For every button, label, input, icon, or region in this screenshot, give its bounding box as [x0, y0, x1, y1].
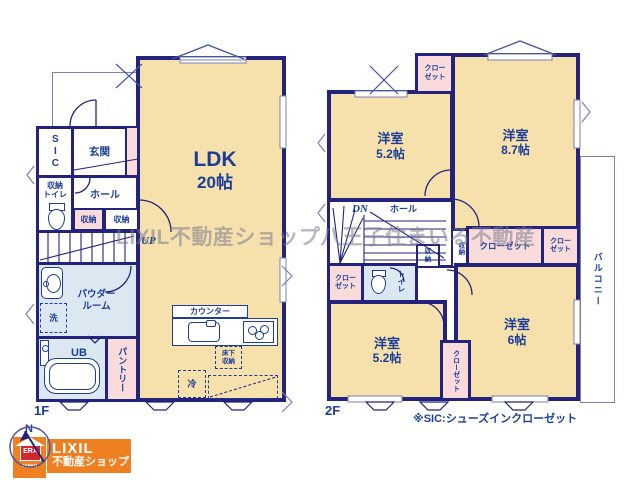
closet-2f-small-l2: ゼット: [550, 246, 571, 254]
compass-north-label: N: [25, 423, 33, 436]
room-2f-se: 洋室 6帖: [454, 263, 580, 401]
pantry-label: パントリー: [117, 347, 128, 392]
brand-sub: 不動産ショップ: [52, 457, 131, 469]
toilet-1f-label1: 収納: [47, 181, 63, 190]
room-toilet-2f: [361, 263, 418, 303]
era-text: ERA: [21, 448, 40, 456]
porch: [52, 72, 140, 128]
room-2f-ne-name: 洋室: [502, 128, 528, 143]
hall-2f-label: ホール: [390, 204, 417, 215]
brand-name: LIXIL: [52, 441, 131, 457]
balcony-label: バルコニー: [592, 252, 603, 307]
sic-label: SIC: [49, 134, 61, 170]
room-genkan: 玄関: [71, 126, 128, 178]
storage-pink-1f: 収納: [73, 208, 104, 231]
closet-2f-left-l2: ゼット: [335, 283, 356, 291]
room-sic: SIC: [36, 126, 74, 178]
closet-2f-top-l1: クロー: [425, 65, 446, 73]
room-2f-nw: 洋室 5.2帖: [327, 90, 454, 202]
closet-2f-mid: クローゼット: [440, 340, 471, 401]
powder-label2: ルーム: [82, 301, 110, 312]
closet-2f-left: クロー ゼット: [327, 263, 364, 303]
era-logo-square: ERA JAPAN: [13, 437, 46, 478]
room-pantry: パントリー: [105, 336, 139, 402]
vent-marks: [60, 402, 533, 410]
ldk-size: 20帖: [160, 173, 270, 193]
closet-2f-top: クロー ゼット: [415, 53, 455, 94]
dn-label: DN: [352, 203, 368, 215]
room-2f-ne: 洋室 8.7帖: [451, 53, 580, 232]
powder-label1: パウダー: [77, 289, 115, 300]
room-2f-sw-name: 洋室: [374, 336, 400, 351]
room-2f-se-size: 6帖: [508, 333, 527, 347]
bathtub-icon: [44, 358, 100, 394]
underfloor-label1: 床下: [222, 350, 235, 358]
genkan-closet: [125, 126, 139, 178]
room-2f-ne-size: 8.7帖: [501, 143, 530, 157]
closet-2f-left-l1: クロー: [335, 275, 356, 283]
brand-logo-box: LIXIL 不動産ショップ: [47, 439, 131, 473]
kitchen-sink-icon: [188, 322, 220, 342]
closet-2f-small: クロー ゼット: [541, 226, 580, 266]
powder-sink-icon: [41, 267, 63, 299]
room-2f-nw-name: 洋室: [377, 131, 403, 146]
closet-2f-small-l1: クロー: [550, 238, 571, 246]
washer-box: 洗: [40, 303, 67, 333]
closet-2f-top-l2: ゼット: [425, 74, 446, 82]
toilet-2f-label: トイレ: [396, 270, 405, 293]
underfloor-storage-box: 床下 収納: [215, 346, 242, 369]
room-2f-nw-size: 5.2帖: [376, 147, 405, 161]
fridge-label: 冷: [187, 379, 196, 390]
storage-pink-1f-label: 収納: [81, 215, 97, 224]
kitchen-counter: カウンター: [172, 305, 248, 318]
floor2-label: 2F: [325, 403, 340, 418]
genkan-label: 玄関: [89, 146, 110, 158]
dining-dashed-area: [208, 375, 278, 399]
balcony: バルコニー: [580, 156, 615, 403]
kitchen-stove-icon: [243, 321, 274, 343]
storage-hall-2f-l2: 納: [425, 256, 432, 264]
hall-1f-label: ホール: [90, 190, 120, 202]
toilet-1f-label2: トイレ: [43, 190, 67, 199]
era-house-icon: ERA: [20, 444, 41, 461]
room-2f-sw: 洋室 5.2帖: [327, 300, 447, 401]
ldk-label: LDK 20帖: [160, 148, 270, 193]
room-2f-sw-size: 5.2帖: [373, 351, 402, 365]
ldk-name: LDK: [160, 148, 270, 173]
fridge-box: 冷: [178, 370, 206, 398]
floorplan-image: LDK 20帖 SIC 玄関 収納 トイレ ホール 収納 収納 UP パウダー …: [0, 0, 640, 480]
era-japan-text: JAPAN: [13, 463, 46, 468]
sic-note: ※SIC:シューズインクローゼット: [413, 413, 577, 426]
underfloor-label2: 収納: [222, 358, 235, 366]
washer-label: 洗: [49, 313, 58, 323]
closet-2f-mid-label: クローゼット: [451, 350, 459, 392]
floor1-label: 1F: [34, 403, 49, 418]
room-2f-se-name: 洋室: [504, 317, 530, 332]
watermark-text: LIXIL不動産ショップ八王子住まいる不動産: [116, 221, 535, 251]
counter-label: カウンター: [190, 307, 230, 316]
